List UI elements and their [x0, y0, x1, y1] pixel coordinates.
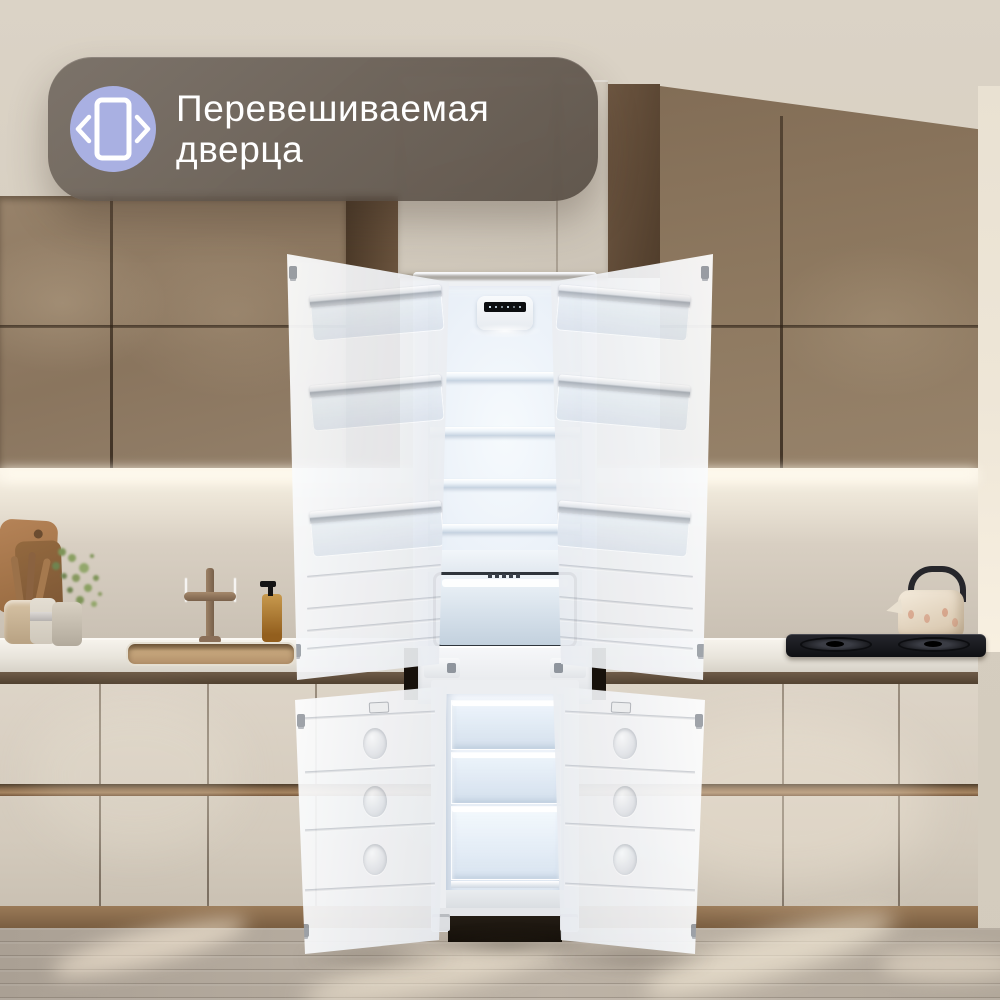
wire-shelf	[451, 881, 559, 888]
kettle-pattern	[908, 610, 914, 619]
door-bin	[309, 500, 445, 557]
gas-cooktop	[786, 634, 986, 657]
door-groove	[565, 823, 695, 833]
door-groove	[307, 564, 441, 579]
freezer-drawer	[451, 806, 561, 880]
drawer-rail	[452, 807, 560, 812]
burner-cap	[924, 641, 942, 647]
cabinet-seam	[780, 116, 783, 508]
handle-indent	[613, 844, 637, 875]
badge-line1: Перевешиваемая	[176, 88, 489, 129]
freezer-door-latch	[369, 701, 390, 713]
board-hole	[34, 529, 43, 538]
display-glow	[468, 324, 542, 338]
temperature-display	[484, 302, 526, 312]
fridge-door-upper-left-open	[281, 244, 451, 684]
crisper-drawer	[433, 572, 577, 648]
door-groove	[565, 765, 695, 775]
door-hinge	[695, 714, 703, 727]
feature-badge: Перевешиваемая дверца	[48, 57, 598, 201]
faucet	[206, 568, 214, 640]
door-bin	[555, 284, 691, 341]
door-bin	[555, 500, 691, 557]
drawer-rail	[452, 701, 560, 706]
door-hinge	[701, 266, 709, 279]
soap-pump	[268, 586, 273, 596]
door-groove	[565, 883, 695, 893]
sink-basin	[126, 642, 296, 666]
door-bin	[309, 374, 445, 431]
door-bin	[555, 374, 691, 431]
sunlight-patch-cabinet	[30, 700, 240, 850]
burner-cap	[826, 641, 844, 647]
freezer-drawer	[451, 700, 561, 750]
handle-indent	[363, 844, 387, 875]
door-groove	[305, 765, 435, 775]
door-groove	[307, 596, 441, 611]
hinge-slot	[447, 663, 456, 673]
freezer-door-lower-right-open	[551, 680, 713, 958]
faucet-crossbar	[184, 592, 236, 601]
door-groove	[305, 823, 435, 833]
housing-side-dark	[608, 84, 660, 278]
badge-text: Перевешиваемая дверца	[176, 88, 489, 170]
plant-vase	[52, 602, 82, 646]
door-hinge	[297, 714, 305, 727]
display-dots	[489, 306, 491, 308]
fridge-door-upper-right-open	[549, 244, 719, 684]
reversible-door-icon	[70, 86, 156, 172]
door-groove	[307, 618, 441, 633]
hinge-slot	[554, 663, 563, 673]
freezer-drawer	[451, 752, 561, 804]
drawer-rail	[452, 753, 560, 758]
door-hinge	[289, 266, 297, 279]
kitchen-scene: Перевешиваемая дверца	[0, 0, 1000, 1000]
plant-foliage	[58, 548, 66, 556]
door-groove	[559, 564, 693, 579]
door-groove	[559, 596, 693, 611]
door-groove	[559, 636, 693, 651]
crisper-vent	[488, 574, 522, 578]
handle-indent	[363, 728, 387, 759]
crisper-rim	[442, 579, 568, 587]
cabinet-seam	[110, 196, 113, 478]
freezer-door-latch	[611, 701, 632, 713]
door-groove	[559, 618, 693, 633]
kettle-body	[898, 590, 964, 640]
soap-pump-head	[260, 581, 276, 587]
right-wall-strip	[978, 86, 1000, 652]
handle-indent	[363, 786, 387, 817]
handle-indent	[613, 786, 637, 817]
badge-line2: дверца	[176, 129, 489, 170]
door-bin	[309, 284, 445, 341]
soap-dispenser	[262, 594, 282, 642]
handle-indent	[613, 728, 637, 759]
door-groove	[307, 636, 441, 651]
door-groove	[305, 883, 435, 893]
freezer-door-lower-left-open	[287, 680, 449, 958]
